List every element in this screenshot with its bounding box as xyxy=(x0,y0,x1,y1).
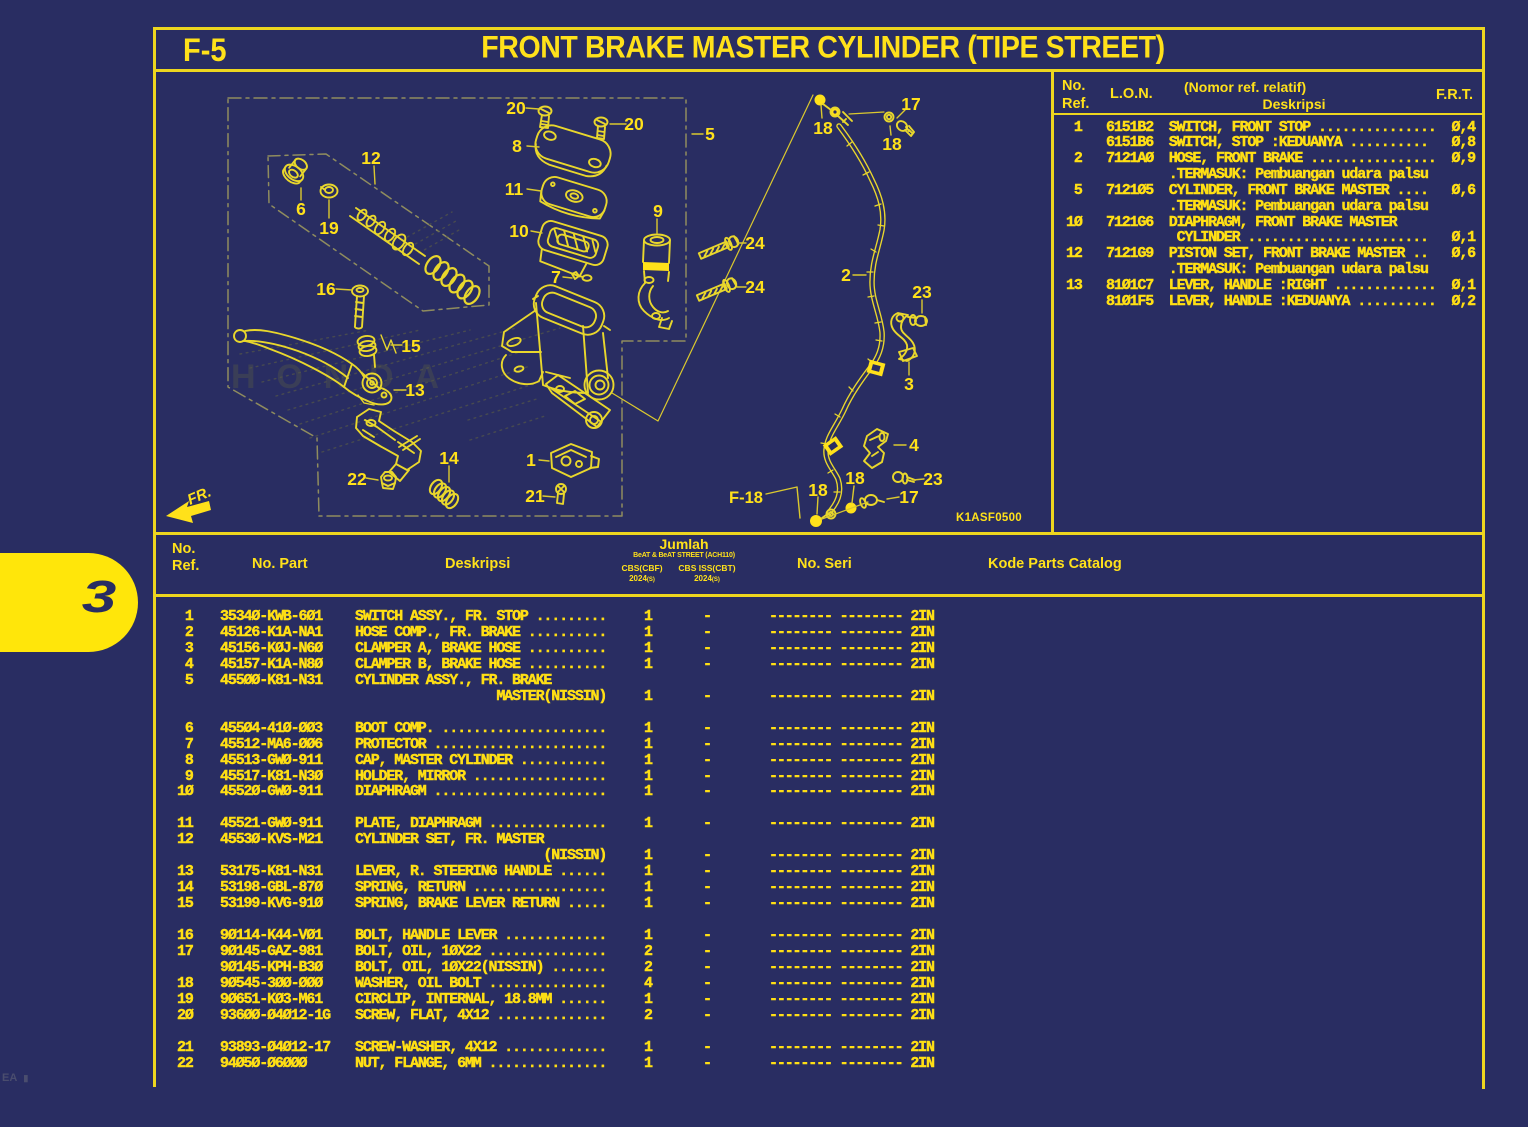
svg-text:19: 19 xyxy=(319,218,339,238)
svg-text:14: 14 xyxy=(439,448,459,468)
svg-text:10: 10 xyxy=(509,221,529,241)
svg-text:24: 24 xyxy=(745,233,765,253)
svg-text:18: 18 xyxy=(882,134,902,154)
svg-text:3: 3 xyxy=(904,374,914,394)
svg-text:17: 17 xyxy=(901,94,920,114)
svg-text:18: 18 xyxy=(808,480,828,500)
svg-text:22: 22 xyxy=(347,469,367,489)
svg-text:20: 20 xyxy=(506,98,526,118)
svg-text:21: 21 xyxy=(525,486,545,506)
svg-text:4: 4 xyxy=(909,435,919,455)
svg-text:13: 13 xyxy=(405,380,425,400)
svg-text:23: 23 xyxy=(912,282,932,302)
svg-text:11: 11 xyxy=(505,179,524,199)
svg-text:18: 18 xyxy=(813,118,833,138)
svg-text:16: 16 xyxy=(316,279,336,299)
svg-text:7: 7 xyxy=(551,267,561,287)
svg-text:K1ASF0500: K1ASF0500 xyxy=(956,512,1022,524)
svg-text:17: 17 xyxy=(899,487,918,507)
svg-text:8: 8 xyxy=(512,136,522,156)
svg-text:23: 23 xyxy=(923,469,943,489)
svg-text:18: 18 xyxy=(845,468,865,488)
svg-text:24: 24 xyxy=(745,277,765,297)
svg-text:1: 1 xyxy=(526,450,536,470)
svg-text:F-18: F-18 xyxy=(729,489,763,507)
svg-text:15: 15 xyxy=(401,336,421,356)
svg-text:12: 12 xyxy=(361,148,381,168)
svg-text:9: 9 xyxy=(653,201,663,221)
svg-text:5: 5 xyxy=(705,124,715,144)
svg-text:6: 6 xyxy=(296,199,306,219)
svg-text:20: 20 xyxy=(624,114,644,134)
svg-text:2: 2 xyxy=(841,265,851,285)
